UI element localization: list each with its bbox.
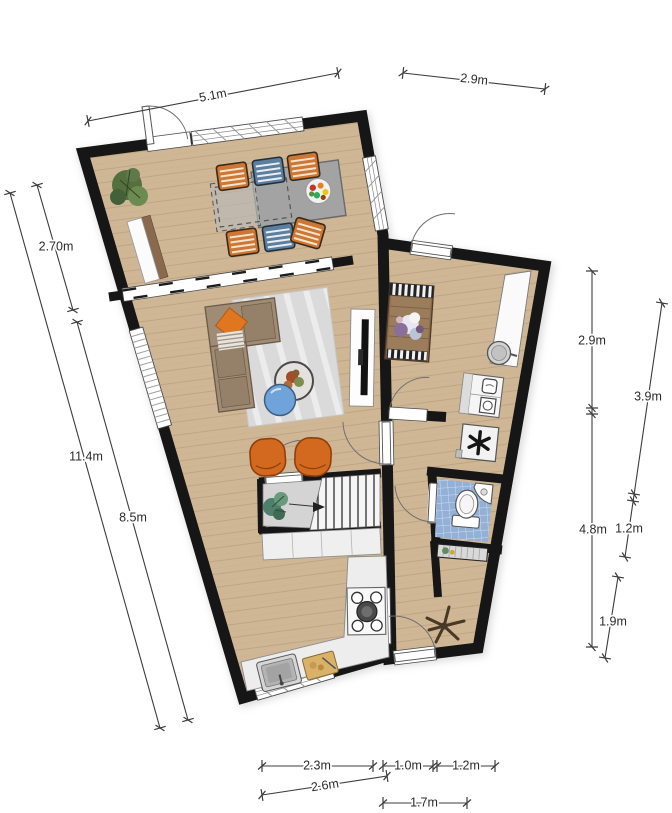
armchair-left: [249, 438, 286, 477]
dimension-label: 2.3m: [303, 758, 331, 772]
bed: [385, 283, 434, 362]
dimension-label: 4.8m: [579, 522, 607, 536]
dimension-label: 1.9m: [599, 614, 627, 628]
dimension-label: 1.7m: [410, 795, 438, 809]
dining-chair: [262, 223, 295, 252]
dining-chair: [287, 152, 320, 181]
dimension-label: 2.9m: [459, 71, 488, 88]
building: [83, 101, 545, 700]
dimension-line-bottom-row3: 1.7m: [379, 795, 471, 809]
dimension-label: 2.70m: [39, 239, 74, 253]
dimension-label: 1.0m: [394, 758, 422, 772]
dimension-label: 8.5m: [119, 510, 147, 524]
dimension-label: 1.2m: [452, 758, 480, 772]
wall-hall-left: [261, 479, 262, 533]
dimension-line-right: 2.9m 4.8m: [578, 267, 607, 651]
dimension-line-top-annex: 2.9m: [398, 67, 549, 96]
dining-chair: [252, 157, 285, 186]
dining-door: [142, 101, 192, 151]
dimension-label: 11.4m: [69, 449, 103, 463]
dimension-label: 2.6m: [310, 776, 340, 794]
dimension-line-bottom-row2: 2.6m: [257, 769, 392, 801]
dimension-line-annex-right: 3.9m 1.2m 1.9m: [598, 298, 668, 663]
dimension-label: 3.9m: [634, 389, 662, 403]
armchair-right: [294, 437, 332, 477]
floorplan-svg: 5.1m 2.9m 11.4m 2.70m 8.5m: [0, 0, 672, 813]
washer-dryer: [459, 373, 504, 418]
entrance-door: [410, 209, 457, 260]
stove: [347, 587, 386, 635]
dimension-line-bottom-row1: 2.3m 1.0m 1.2m: [258, 758, 499, 772]
ventilation-unit: [455, 424, 498, 462]
dimension-line-left-upper: 2.70m: [30, 180, 80, 316]
dimension-label: 2.9m: [578, 333, 606, 347]
dining-chair: [226, 228, 259, 257]
kitchen-cabinet-row: [262, 528, 381, 560]
dining-chair: [216, 162, 249, 191]
dimension-label: 5.1m: [198, 86, 228, 105]
tv-cabinet: [349, 309, 375, 406]
throw-blanket: [217, 330, 245, 350]
washer-door-icon: [482, 378, 498, 394]
floorplan-canvas: 5.1m 2.9m 11.4m 2.70m 8.5m: [0, 0, 672, 813]
dryer-door-icon: [479, 397, 496, 414]
bed-headboard: [389, 283, 434, 298]
dimension-label: 1.2m: [615, 521, 643, 535]
